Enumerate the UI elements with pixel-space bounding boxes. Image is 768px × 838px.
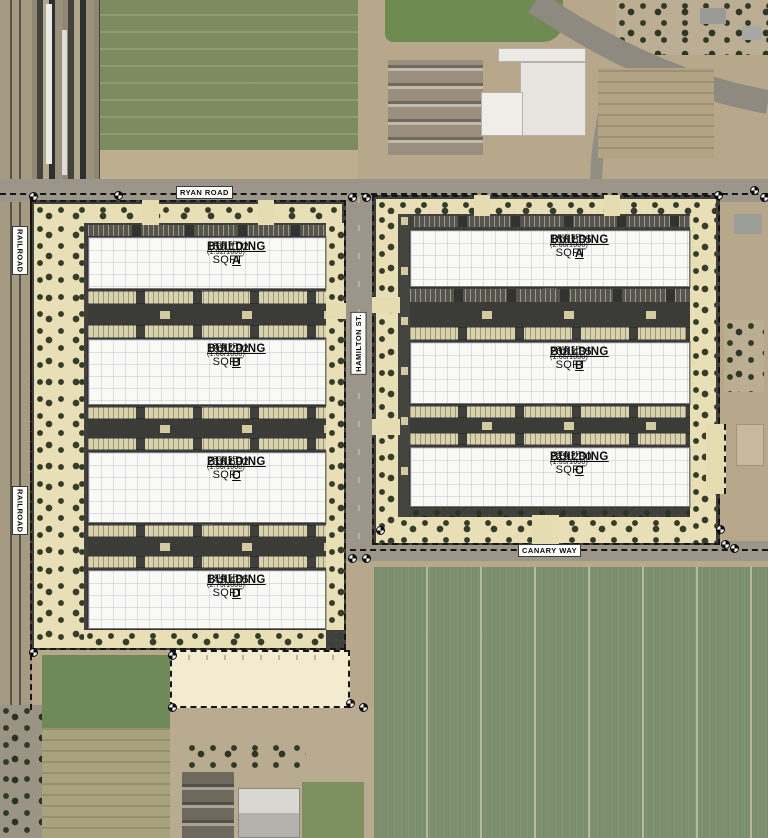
landscape-strip-north (34, 204, 342, 223)
railroad-label-lower: RAILROAD (12, 486, 28, 535)
building-parking-count: 329 SP. (1.66/1000) (207, 343, 245, 360)
building-parking-count: 345 SP. (1.66/1000) (550, 346, 588, 363)
survey-marker-icon (362, 554, 371, 563)
house-roof (742, 26, 762, 40)
parking-row (88, 438, 326, 450)
dirt-rows-field (598, 68, 714, 158)
small-parking-lot (182, 772, 234, 838)
parking-row (410, 327, 690, 340)
survey-marker-icon (29, 192, 38, 201)
survey-marker-icon (168, 703, 177, 712)
building-parking-count: 355 SP. (1.55/1000) (550, 451, 588, 468)
ryan-road-label: RYAN ROAD (176, 186, 233, 199)
parking-column-west (398, 214, 410, 517)
parking-row (410, 289, 690, 302)
driveway-entrance (326, 303, 346, 319)
landscape-strip-north (376, 199, 716, 214)
driveway-entrance (372, 419, 400, 435)
site-plan-map: BUILDING A 150,102 SQFT 288 SP. (1.92/10… (0, 0, 768, 838)
driveway-entrance (372, 297, 400, 313)
house-roof (700, 8, 726, 24)
railroad-label-upper: RAILROAD (12, 226, 28, 275)
driveway-entrance (532, 515, 559, 545)
hamilton-street-label: HAMILTON ST. (351, 312, 367, 375)
building-b-east: BUILDING B 208,435 SQFT 345 SP. (1.66/10… (410, 342, 690, 404)
survey-marker-icon (750, 186, 759, 195)
drive-aisle (88, 537, 326, 556)
parking-row (88, 325, 326, 338)
drive-aisle (410, 302, 690, 327)
gable-roof-building (238, 788, 300, 838)
survey-marker-icon (730, 544, 739, 553)
survey-marker-icon (359, 703, 368, 712)
building-parking-count: 410 SP. (2.75/1000) (207, 574, 245, 591)
landscape-strip-south (84, 630, 326, 648)
yard-trees (186, 742, 306, 768)
parking-row (414, 216, 690, 227)
survey-marker-icon (346, 699, 355, 708)
parking-row (88, 407, 326, 419)
canary-way-label: CANARY WAY (518, 544, 581, 557)
landscape-strip-west (376, 214, 398, 543)
building-parking-count: 288 SP. (1.92/1000) (207, 241, 245, 258)
survey-marker-icon (714, 191, 723, 200)
survey-marker-icon (348, 193, 357, 202)
school-building (520, 62, 586, 136)
driveway-entrance (258, 200, 274, 225)
building-parking-count: 446 SP. (2.68/1000) (550, 234, 588, 251)
parcel-east: BUILDING A 166,835 SQFT 446 SP. (2.68/10… (372, 195, 720, 545)
parking-row (88, 291, 326, 304)
survey-marker-icon (362, 193, 371, 202)
survey-marker-icon (348, 554, 357, 563)
drive-aisle (88, 304, 326, 325)
driveway-entrance (142, 200, 159, 225)
school-roof (498, 48, 586, 62)
survey-marker-icon (716, 525, 725, 534)
lawn-patch (302, 782, 364, 838)
building-a-east: BUILDING A 166,835 SQFT 446 SP. (2.68/10… (410, 230, 690, 287)
survey-marker-icon (760, 193, 768, 202)
landscape-strip-west (34, 223, 84, 648)
east-structure (736, 424, 764, 466)
building-d-west: BUILDING D 149,485 SQFT 410 SP. (2.75/10… (88, 570, 326, 629)
survey-marker-icon (376, 526, 385, 535)
drive-aisle (410, 418, 690, 433)
property-line-west (30, 196, 32, 710)
school-parking-lot (388, 60, 483, 155)
school-wing (481, 92, 523, 136)
building-a-west: BUILDING A 150,102 SQFT 288 SP. (1.92/10… (88, 237, 326, 289)
parking-row (88, 556, 326, 568)
building-c-east: BUILDING C 229,230 SQFT 355 SP. (1.55/10… (410, 447, 690, 507)
landscape-strip-east (326, 223, 344, 630)
parcel-west: BUILDING A 150,102 SQFT 288 SP. (1.92/10… (30, 200, 346, 650)
drive-aisle (88, 419, 326, 438)
parking-row (410, 433, 690, 445)
future-expansion-area (170, 650, 350, 708)
parking-row (410, 406, 690, 418)
driveway-entrance (604, 195, 620, 216)
survey-marker-icon (721, 540, 730, 549)
building-parking-count: 336 SP. (1.56/1000) (207, 456, 245, 473)
driveway-entrance (474, 195, 490, 216)
survey-marker-icon (114, 191, 123, 200)
parking-row (88, 525, 326, 537)
survey-marker-icon (29, 648, 38, 657)
survey-marker-icon (168, 651, 177, 660)
building-c-west: BUILDING C 216,692 SQFT 336 SP. (1.56/10… (88, 452, 326, 523)
building-b-west: BUILDING B 199,292 SQFT 329 SP. (1.66/10… (88, 339, 326, 405)
parcel-east-bump-out (706, 424, 726, 494)
east-structure (734, 214, 762, 234)
parking-row (88, 225, 326, 236)
